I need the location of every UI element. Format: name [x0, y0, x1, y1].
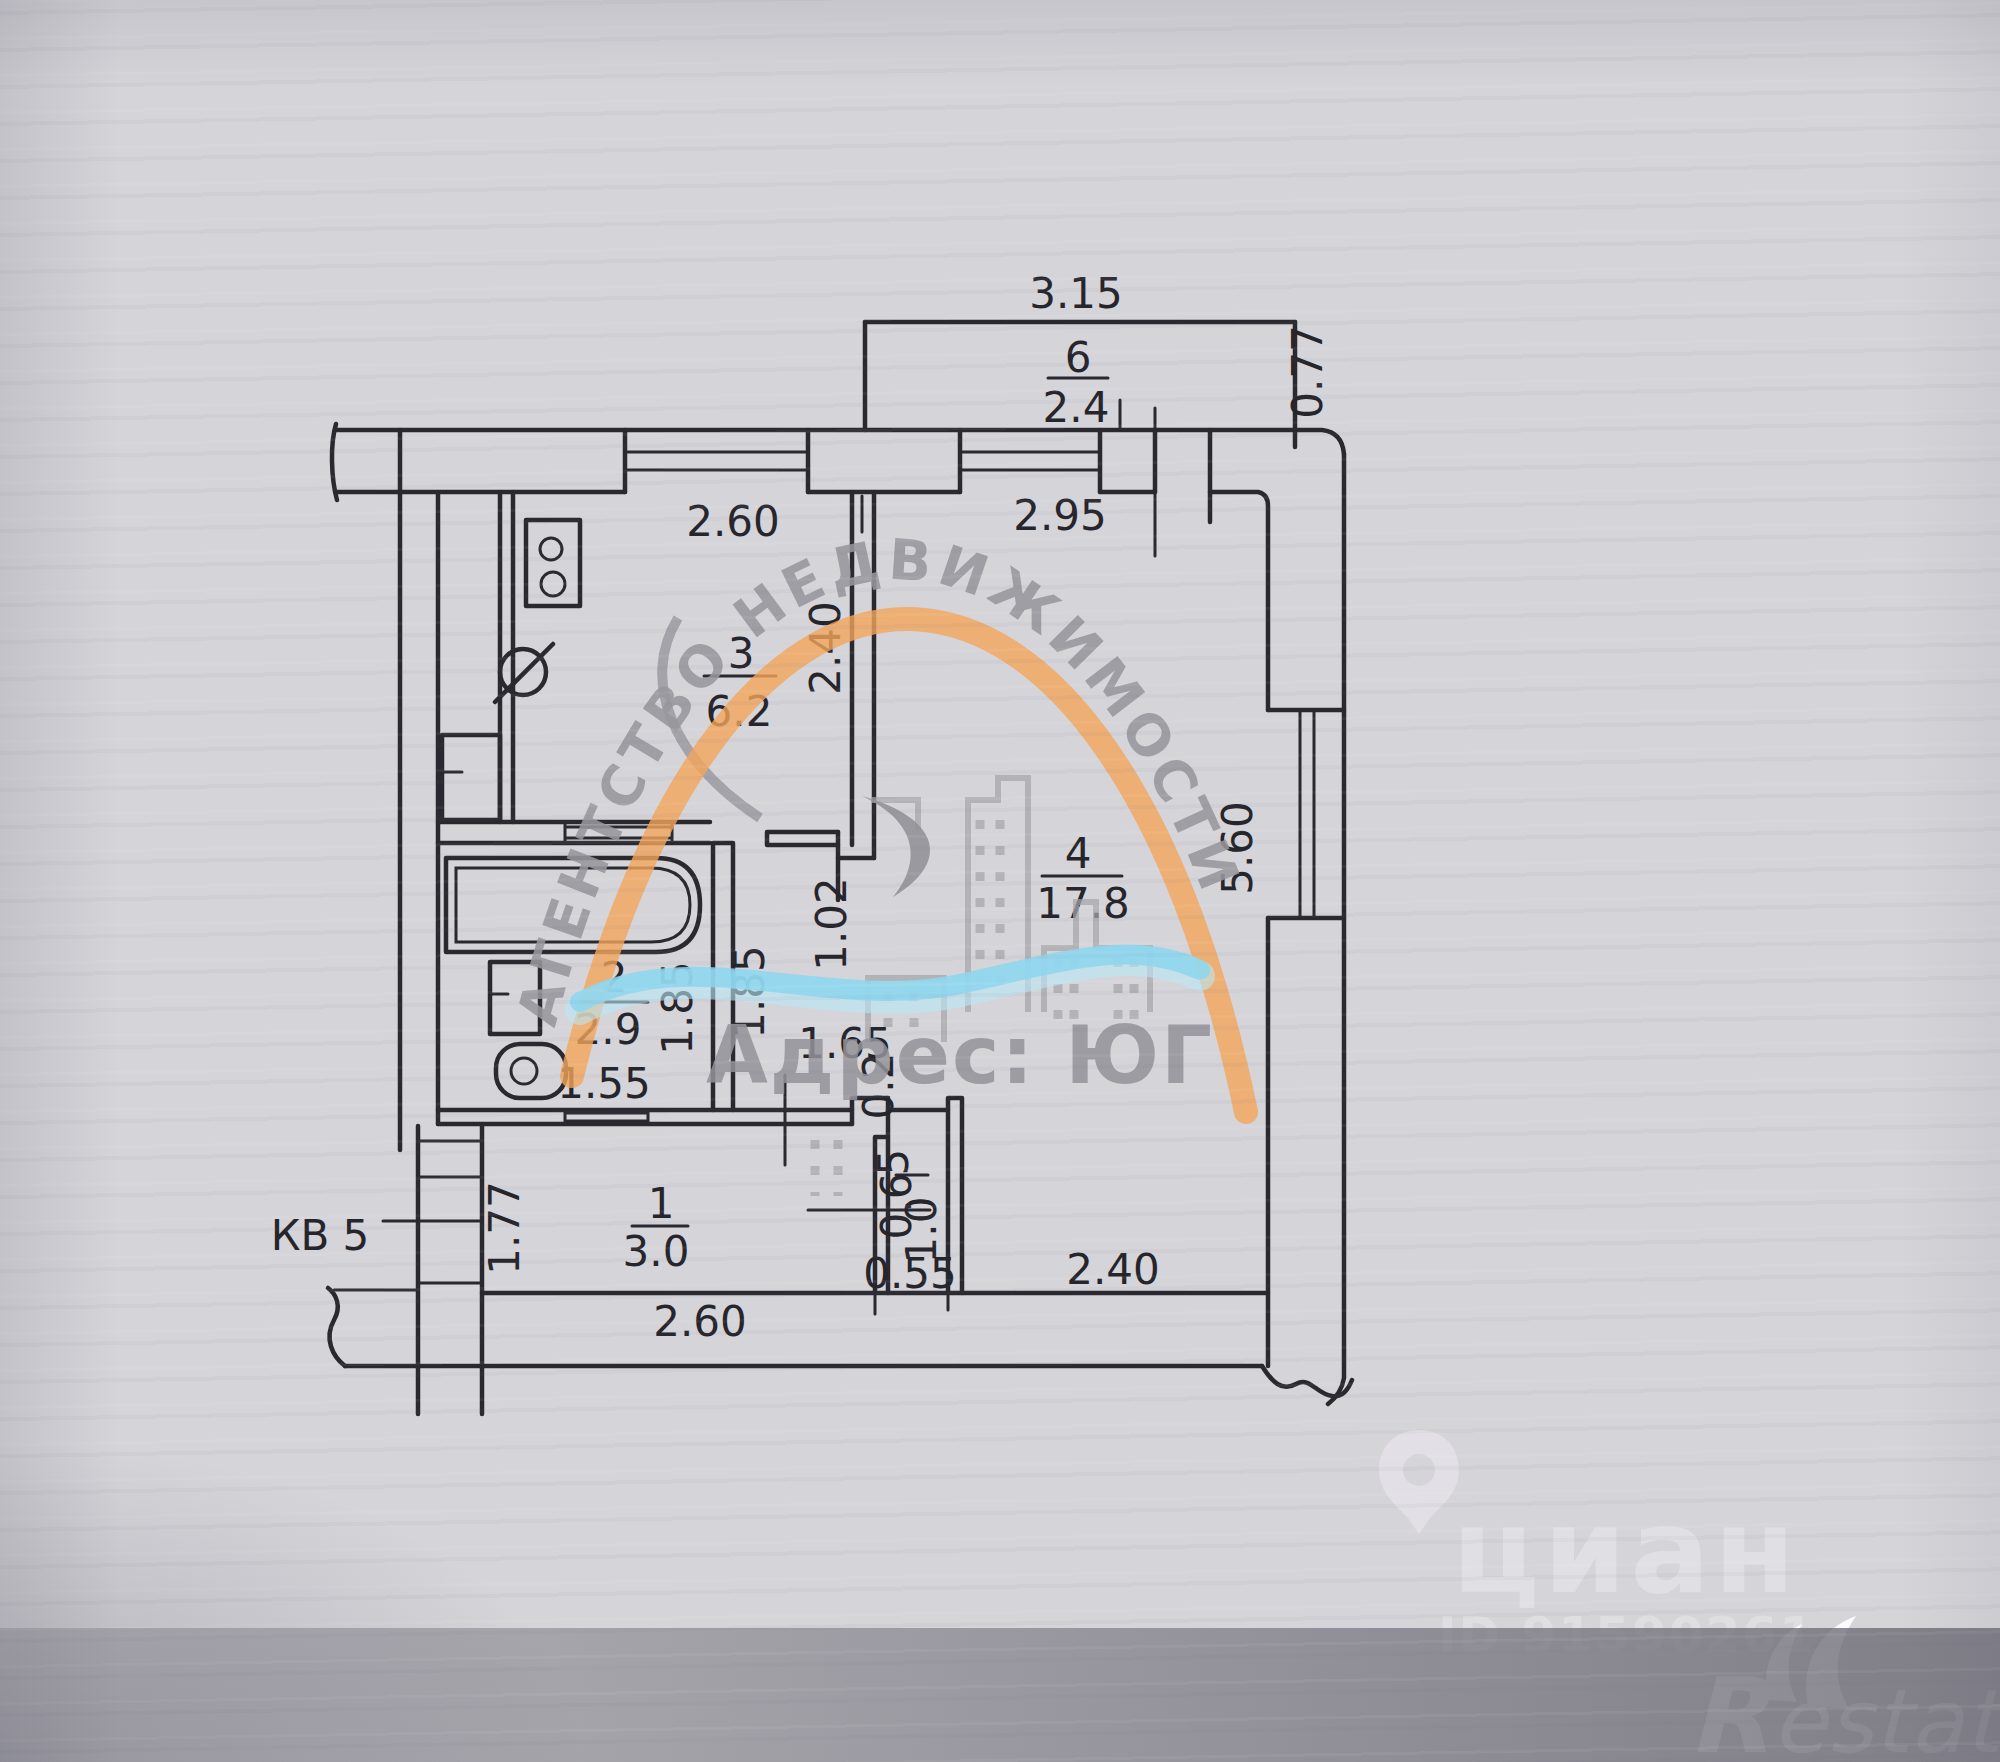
kitchen-sink-icon	[495, 644, 553, 702]
agency-name-text: Адрес: ЮГ	[706, 1009, 1214, 1102]
map-pin-icon	[1379, 1430, 1459, 1534]
cian-logo-text: циан	[1452, 1482, 1799, 1620]
cian-watermark: циан ID 91590261	[1379, 1430, 1816, 1664]
dim-living-door: 1.02	[807, 877, 856, 971]
floor-plan-svg: 3.15 6 2.4 0.77 2.60 2.95 2.40 3 6.2 4 1…	[0, 0, 2000, 1762]
living-room-window-right	[1268, 710, 1344, 918]
room-hall-number: 1	[648, 1179, 675, 1228]
dim-balcony-depth: 0.77	[1283, 325, 1332, 419]
room-balcony-area: 2.4	[1043, 383, 1110, 432]
dim-balcony-width: 3.15	[1029, 269, 1123, 318]
bathroom-door	[565, 1110, 648, 1124]
dim-hall-width: 2.60	[653, 1297, 747, 1346]
room-living-number: 4	[1065, 829, 1092, 878]
dim-kitchen-width: 2.60	[686, 497, 780, 546]
dim-living-bottom-width: 2.40	[1066, 1245, 1160, 1294]
kitchen-window	[625, 452, 808, 470]
dim-entry-width: 1.77	[480, 1181, 529, 1275]
living-room-window-top	[960, 452, 1100, 470]
dim-living-top-width: 2.95	[1013, 491, 1107, 540]
dim-closet-width: 0.55	[863, 1249, 957, 1298]
apartment-label: КВ 5	[271, 1211, 370, 1260]
scanned-floor-plan-photo: 3.15 6 2.4 0.77 2.60 2.95 2.40 3 6.2 4 1…	[0, 0, 2000, 1762]
staircase	[383, 1124, 482, 1414]
restate-logo-r: R	[1688, 1655, 1773, 1762]
room-balcony-number: 6	[1065, 333, 1092, 382]
room-closet-number: 5	[869, 1149, 918, 1176]
toilet-icon	[496, 1044, 566, 1098]
stove-icon	[526, 520, 580, 606]
room-hall-area: 3.0	[623, 1227, 690, 1276]
radiator-icon	[442, 735, 500, 820]
restate-logo-rest: estate	[1772, 1670, 2000, 1762]
